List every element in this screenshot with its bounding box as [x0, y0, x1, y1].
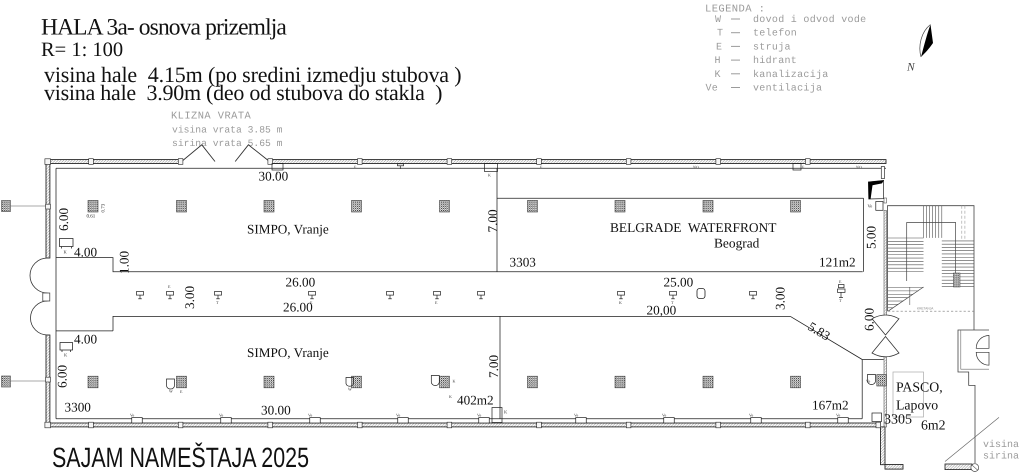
svg-text:K: K — [488, 173, 491, 178]
svg-text:Ve: Ve — [219, 413, 223, 418]
svg-text:HALA 3a- osnova prizemlja: HALA 3a- osnova prizemlja — [41, 15, 287, 41]
svg-text:visina hale 3.90m (deo od stu: visina hale 3.90m (deo od stubova do sta… — [44, 80, 442, 105]
svg-text:visina vrata: visina vrata — [983, 439, 1024, 451]
svg-text:K: K — [449, 394, 452, 399]
svg-text:BELGRADE WATERFRONT: BELGRADE WATERFRONT — [610, 220, 776, 235]
svg-text:LEGENDA :: LEGENDA : — [705, 4, 765, 16]
svg-text:H: H — [715, 56, 721, 67]
svg-text:KLIZNA VRATA: KLIZNA VRATA — [171, 111, 252, 123]
svg-text:0.73: 0.73 — [101, 203, 107, 212]
svg-text:Ve: Ve — [574, 413, 578, 418]
svg-text:NO: NO — [693, 165, 699, 170]
svg-text:6.00: 6.00 — [55, 365, 70, 388]
svg-text:30.00: 30.00 — [259, 169, 289, 184]
svg-text:Ve: Ve — [130, 413, 134, 418]
svg-text:Ve: Ve — [836, 413, 840, 418]
svg-text:0.61: 0.61 — [87, 214, 96, 220]
svg-text:SAJAM NAMEŠTAJA 2025: SAJAM NAMEŠTAJA 2025 — [52, 442, 309, 473]
svg-text:K: K — [619, 300, 622, 305]
svg-text:Ve: Ve — [868, 204, 873, 209]
svg-text:3.00: 3.00 — [773, 287, 788, 310]
svg-text:SIMPO, Vranje: SIMPO, Vranje — [247, 222, 329, 237]
svg-text:3305: 3305 — [884, 413, 912, 428]
svg-text:ventilacija: ventilacija — [753, 83, 822, 95]
svg-text:Ve: Ve — [477, 413, 481, 418]
svg-text:Ve: Ve — [308, 413, 312, 418]
svg-text:26.00: 26.00 — [286, 275, 316, 290]
svg-text:7.00: 7.00 — [486, 355, 501, 378]
svg-text:W: W — [348, 387, 352, 392]
svg-text:KRETANJA: KRETANJA — [917, 307, 934, 311]
svg-text:Ve: Ve — [706, 84, 719, 95]
svg-text:sirina vrata: sirina vrata — [983, 451, 1024, 463]
svg-text:Ve: Ve — [662, 413, 666, 418]
svg-text:3303: 3303 — [510, 255, 537, 270]
svg-text:W: W — [169, 389, 173, 394]
svg-text:E: E — [716, 42, 722, 53]
svg-text:N: N — [906, 62, 916, 74]
svg-text:25.00: 25.00 — [664, 275, 694, 290]
svg-text:struja: struja — [753, 41, 791, 53]
svg-text:Lapovo: Lapovo — [896, 398, 938, 413]
svg-text:dovod i odvod vode: dovod i odvod vode — [753, 14, 866, 26]
svg-text:6.00: 6.00 — [56, 208, 71, 231]
svg-text:1.00: 1.00 — [117, 251, 132, 274]
svg-text:4.00: 4.00 — [74, 332, 97, 347]
svg-text:26.00: 26.00 — [283, 300, 313, 315]
svg-text:K: K — [715, 70, 721, 81]
svg-text:W: W — [715, 15, 721, 26]
svg-text:NO: NO — [856, 165, 862, 170]
svg-text:Ve: Ve — [396, 413, 400, 418]
svg-text:kanalizacija: kanalizacija — [753, 69, 829, 81]
svg-text:telefon: telefon — [753, 28, 797, 40]
svg-text:3.00: 3.00 — [182, 286, 197, 309]
svg-text:T: T — [717, 29, 723, 40]
svg-text:visina vrata 3.85 m: visina vrata 3.85 m — [172, 125, 283, 136]
svg-text:4.00: 4.00 — [74, 245, 97, 260]
svg-text:121m2: 121m2 — [819, 255, 856, 270]
svg-text:K: K — [453, 379, 456, 384]
svg-text:SIMPO, Vranje: SIMPO, Vranje — [247, 345, 329, 360]
svg-text:6m2: 6m2 — [921, 418, 946, 433]
svg-text:167m2: 167m2 — [812, 398, 849, 413]
svg-text:Ve: Ve — [749, 413, 753, 418]
svg-text:Beograd: Beograd — [714, 236, 760, 251]
svg-text:hidrant: hidrant — [753, 55, 797, 67]
svg-text:sirina vrata 5.65 m: sirina vrata 5.65 m — [172, 138, 283, 149]
svg-text:Ve: Ve — [866, 379, 870, 384]
svg-text:3300: 3300 — [65, 400, 92, 415]
svg-text:7.00: 7.00 — [485, 209, 500, 232]
svg-text:402m2: 402m2 — [457, 393, 494, 408]
svg-text:R= 1: 100: R= 1: 100 — [41, 39, 123, 61]
svg-text:5.00: 5.00 — [864, 226, 879, 249]
svg-text:PASCO,: PASCO, — [896, 380, 943, 395]
svg-text:30.00: 30.00 — [261, 403, 291, 418]
